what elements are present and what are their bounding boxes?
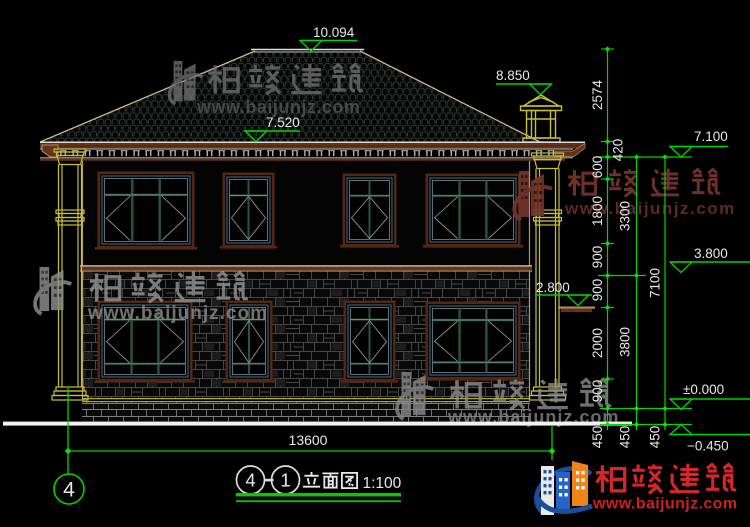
svg-text:www.baijunjz.com: www.baijunjz.com [196,97,360,117]
svg-text:7.100: 7.100 [694,129,728,144]
svg-text:10.094: 10.094 [313,25,355,40]
svg-text:1: 1 [280,470,290,491]
svg-text:7.520: 7.520 [266,115,300,130]
svg-text:3800: 3800 [618,327,633,357]
svg-text:−0.450: −0.450 [687,439,729,454]
svg-text:900: 900 [590,279,605,302]
svg-text:7100: 7100 [648,268,663,298]
svg-text:3.800: 3.800 [694,246,728,261]
svg-text:13600: 13600 [289,432,328,448]
svg-text:3300: 3300 [618,201,633,231]
svg-text:8.850: 8.850 [496,68,530,83]
svg-text:2.800: 2.800 [536,280,570,295]
svg-text:450: 450 [590,426,605,449]
svg-text:1:100: 1:100 [363,475,402,492]
svg-text:900: 900 [590,246,605,269]
svg-text:900: 900 [590,380,605,403]
svg-text:600: 600 [590,156,605,179]
svg-text:450: 450 [648,426,663,449]
svg-text:4: 4 [63,479,75,502]
svg-text:www.baijunjz.com: www.baijunjz.com [592,496,738,513]
svg-text:4: 4 [245,470,255,491]
svg-text:±0.000: ±0.000 [683,382,724,397]
svg-text:450: 450 [618,426,633,449]
svg-text:2574: 2574 [590,79,605,110]
svg-text:420: 420 [611,139,626,162]
svg-text:1800: 1800 [590,196,605,226]
svg-text:2000: 2000 [590,328,605,358]
svg-text:www.baijunjz.com: www.baijunjz.com [87,303,268,324]
